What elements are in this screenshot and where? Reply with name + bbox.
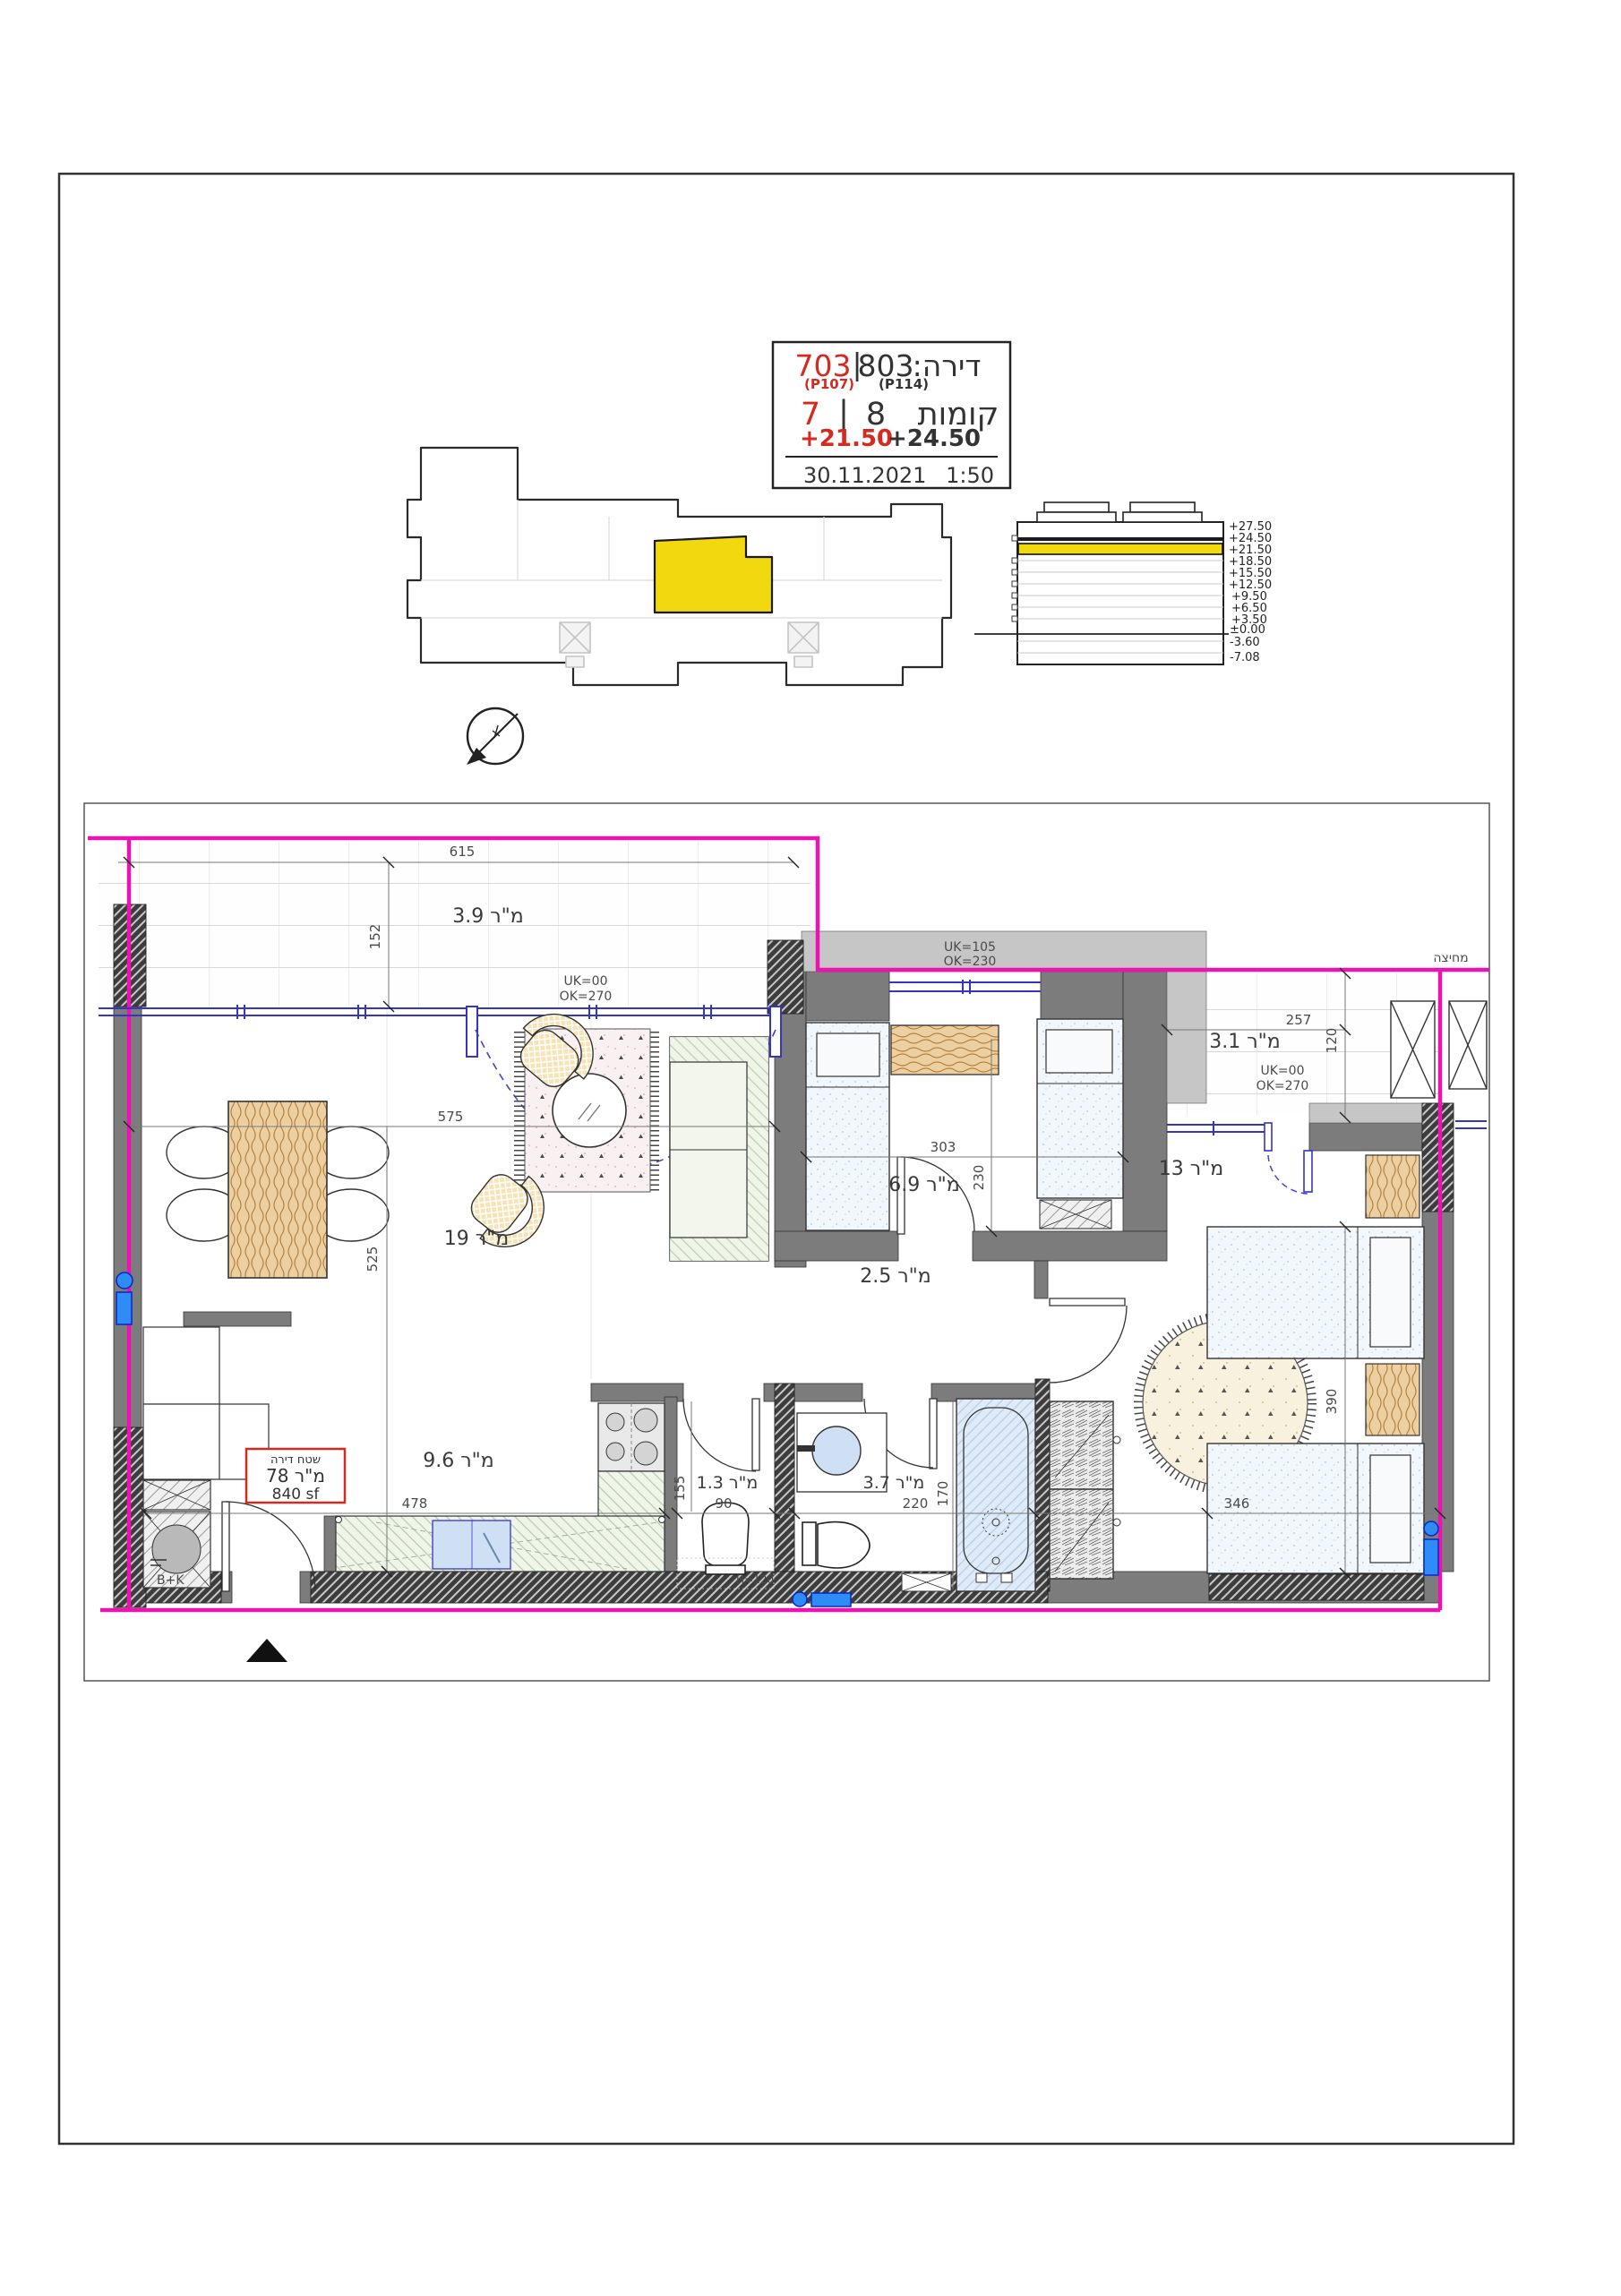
toilet-bath bbox=[802, 1522, 870, 1568]
window-neighbor-east bbox=[1455, 1121, 1487, 1128]
entry-jamb-east bbox=[300, 1572, 311, 1603]
title-block: דירה: 803 | 703 (P114) (P107) קומות 8 | … bbox=[773, 342, 1010, 488]
wall-master-east bbox=[1422, 1151, 1454, 1572]
date-label: 30.11.2021 bbox=[803, 463, 926, 488]
column-master-ne bbox=[1422, 1103, 1454, 1212]
meter-east-round bbox=[1424, 1521, 1438, 1536]
wall-bedroom-south-b bbox=[973, 1231, 1167, 1261]
dim-303: 303 bbox=[931, 1139, 956, 1155]
level-label: -3.60 bbox=[1230, 636, 1260, 649]
nightstand-middle bbox=[1366, 1364, 1419, 1435]
wall-counter-stub bbox=[324, 1516, 336, 1572]
bedroom-furniture bbox=[806, 1019, 1123, 1230]
note-living-sill-a: UK=00 bbox=[564, 974, 608, 989]
bed-single-east bbox=[1037, 1019, 1123, 1229]
window-living-band bbox=[99, 1008, 775, 1015]
plan-sheet-svg: דירה: 803 | 703 (P114) (P107) קומות 8 | … bbox=[0, 0, 1621, 2292]
area-box-sqm: מ"ר 78 bbox=[266, 1465, 325, 1486]
nightstand-north bbox=[1366, 1155, 1419, 1218]
note-balc-sill-b: OK=270 bbox=[1256, 1079, 1309, 1093]
room-bath: מ"ר 3.7 bbox=[863, 1473, 925, 1493]
meter-east-box bbox=[1424, 1539, 1438, 1575]
dim-152: 152 bbox=[367, 924, 383, 950]
wall-hall-stub bbox=[1034, 1261, 1048, 1298]
drawing-sheet: דירה: 803 | 703 (P114) (P107) קומות 8 | … bbox=[0, 0, 1621, 2292]
dim-257: 257 bbox=[1286, 1012, 1312, 1028]
wall-bedroom-pier-east bbox=[1041, 972, 1123, 1021]
dim-120: 120 bbox=[1324, 1028, 1340, 1054]
note-balc-sill-a: UK=00 bbox=[1261, 1064, 1305, 1078]
room-master: מ"ר 13 bbox=[1159, 1158, 1223, 1180]
area-box: שטח דירה מ"ר 78 840 sf bbox=[246, 1449, 345, 1504]
meter-south-round bbox=[793, 1592, 807, 1606]
level-label: -7.08 bbox=[1230, 651, 1260, 664]
dim-230: 230 bbox=[971, 1165, 987, 1191]
elevation-primary: +21.50 bbox=[800, 425, 893, 452]
note-bed-sill-b: OK=230 bbox=[944, 955, 997, 969]
shaft-label: B+K bbox=[157, 1573, 184, 1588]
meter-south-box bbox=[811, 1593, 851, 1606]
room-balcony-living: מ"ר 3.9 bbox=[452, 905, 523, 928]
elevation-secondary: +24.50 bbox=[888, 425, 981, 452]
level-label: ±0.00 bbox=[1230, 623, 1265, 637]
bed-master-north bbox=[1207, 1227, 1424, 1358]
washer-niche bbox=[902, 1573, 951, 1591]
coffee-table bbox=[553, 1074, 626, 1147]
dining-set bbox=[167, 1101, 389, 1278]
party-wall-south-c bbox=[1209, 1574, 1424, 1600]
sofa bbox=[670, 1037, 768, 1261]
room-living: מ"ר 19 bbox=[444, 1228, 509, 1250]
scale-label: 1:50 bbox=[946, 463, 994, 488]
note-bed-sill-a: UK=105 bbox=[944, 940, 996, 955]
wall-master-north bbox=[1309, 1123, 1422, 1151]
note-living-sill-b: OK=270 bbox=[560, 990, 613, 1004]
dim-478: 478 bbox=[402, 1495, 428, 1512]
section-diagram: +27.50 +24.50 +21.50 +18.50 +15.50 +12.5… bbox=[974, 502, 1272, 664]
wardrobe bbox=[1050, 1401, 1120, 1579]
section-level-labels: +27.50 +24.50 +21.50 +18.50 +15.50 +12.5… bbox=[1229, 520, 1272, 664]
wall-bedroom-south-a bbox=[775, 1231, 898, 1261]
wall-bedroom-pier-west bbox=[806, 972, 889, 1021]
stove bbox=[598, 1403, 665, 1471]
dim-615: 615 bbox=[450, 844, 476, 860]
dim-575: 575 bbox=[438, 1109, 464, 1125]
parking-primary: (P107) bbox=[804, 376, 854, 392]
room-hall: מ"ר 2.5 bbox=[860, 1265, 931, 1288]
dresser bbox=[891, 1025, 999, 1075]
bed-single-west bbox=[806, 1023, 889, 1230]
room-kitchen: מ"ר 9.6 bbox=[423, 1450, 493, 1472]
dim-170: 170 bbox=[935, 1481, 951, 1507]
meter-west-round bbox=[116, 1272, 133, 1289]
dim-90: 90 bbox=[715, 1495, 732, 1512]
dining-table bbox=[228, 1101, 327, 1278]
note-wc-height: H=120 bbox=[736, 1573, 774, 1586]
room-bedroom: מ"ר 6.9 bbox=[888, 1174, 959, 1196]
north-arrow-icon bbox=[467, 708, 523, 765]
window-bedroom bbox=[889, 980, 1041, 994]
bk-shaft: B+K bbox=[143, 1480, 210, 1588]
section-roof-structures bbox=[1037, 502, 1202, 522]
entry-arrow-icon bbox=[246, 1639, 287, 1662]
parking-secondary: (P114) bbox=[879, 376, 929, 392]
section-slab-2450 bbox=[1017, 537, 1223, 541]
note-partition: מחיצה bbox=[1433, 951, 1468, 965]
floor-plan: B+K bbox=[84, 803, 1489, 1681]
door-master bbox=[1050, 1298, 1127, 1383]
dim-346: 346 bbox=[1224, 1495, 1250, 1512]
section-highlight-2150 bbox=[1018, 544, 1222, 554]
meter-west-box bbox=[116, 1292, 132, 1324]
dim-220: 220 bbox=[903, 1495, 929, 1512]
room-balcony-master: מ"ר 3.1 bbox=[1209, 1031, 1280, 1053]
area-box-sqf: 840 sf bbox=[272, 1486, 321, 1504]
dim-390: 390 bbox=[1324, 1389, 1340, 1415]
bathtub bbox=[956, 1399, 1035, 1591]
room-wc: מ"ר 1.3 bbox=[697, 1473, 759, 1493]
column-living-ne bbox=[768, 940, 803, 1014]
wall-bedroom-east bbox=[1123, 972, 1167, 1231]
window-master bbox=[1167, 1121, 1265, 1135]
plumbing-wall-bath-east bbox=[1035, 1379, 1050, 1591]
plumbing-wall-wc-bath bbox=[775, 1384, 794, 1589]
dim-525: 525 bbox=[365, 1247, 381, 1272]
door-wc bbox=[683, 1399, 759, 1471]
wall-kitchen-stub bbox=[184, 1312, 291, 1326]
dim-155: 155 bbox=[672, 1476, 688, 1502]
